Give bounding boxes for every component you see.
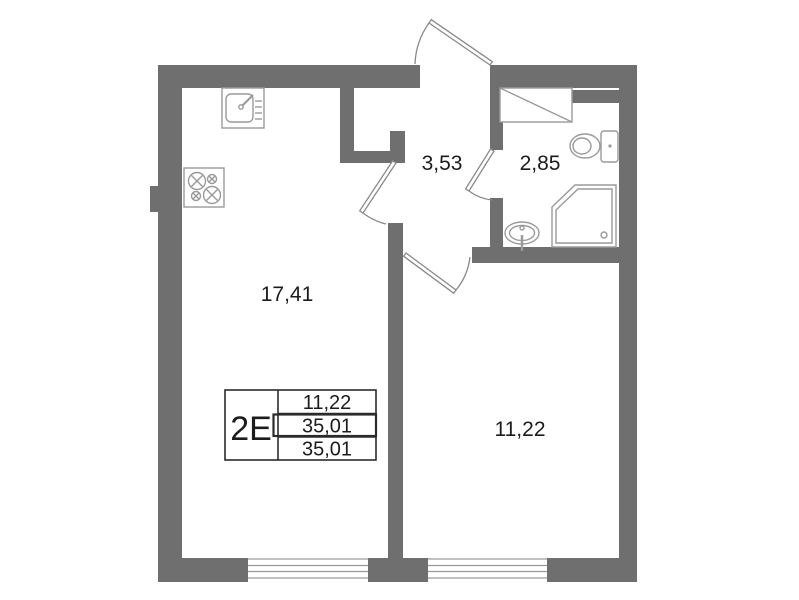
wall-left-nub (150, 186, 158, 212)
entrance-door-swing-arc (415, 23, 429, 64)
room-label-bedroom: 11,22 (495, 418, 546, 441)
wall-top-right (490, 65, 637, 88)
wall-top-left (158, 65, 420, 88)
unit-area-row-1: 11,22 (303, 392, 352, 414)
bedroom-door-swing-arc (456, 257, 470, 290)
living-room-door (360, 161, 396, 224)
wall-left (158, 65, 182, 582)
room-label-bathroom: 2,85 (520, 152, 561, 175)
wall-right (619, 65, 637, 582)
entrance-door (415, 20, 492, 65)
wall-vent-duct (572, 90, 619, 103)
unit-area-row-2: 35,01 (302, 416, 352, 438)
wall-kitchen-niche-stub (390, 131, 405, 163)
wall-bottom-right (547, 558, 637, 582)
shower-icon (552, 185, 616, 247)
stove-icon (184, 168, 224, 207)
window-bedroom (428, 558, 547, 582)
bathroom-door-swing-arc (469, 191, 492, 200)
unit-info-table: 2Е 11,22 35,01 35,01 (225, 390, 376, 461)
bathroom-door (466, 149, 494, 200)
walls (150, 65, 637, 582)
window-living-room (248, 558, 368, 582)
bathroom-door-leaf (466, 149, 494, 191)
unit-area-row-3: 35,01 (302, 439, 352, 461)
wall-bathroom-left-lower (490, 198, 503, 247)
wall-bottom-left (158, 558, 248, 582)
washbasin-icon (505, 222, 539, 251)
wall-bathroom-bottom (472, 247, 619, 263)
floor-plan: 17,41 3,53 2,85 11,22 2Е 11,22 35,01 35,… (0, 0, 799, 600)
washing-machine-icon (500, 88, 572, 122)
wall-bottom-pier (368, 558, 428, 582)
toilet-icon (570, 131, 618, 162)
bedroom-door (404, 253, 470, 293)
entrance-door-leaf (429, 20, 492, 65)
wall-partition-bedroom (388, 223, 403, 558)
room-label-living-kitchen: 17,41 (261, 283, 314, 306)
kitchen-sink-icon (222, 88, 264, 128)
bedroom-door-leaf (404, 253, 456, 293)
room-label-hallway: 3,53 (422, 152, 463, 175)
living-room-door-leaf (360, 161, 396, 213)
floor-plan-canvas: 17,41 3,53 2,85 11,22 2Е 11,22 35,01 35,… (0, 0, 799, 600)
unit-type-label: 2Е (230, 410, 272, 448)
living-room-door-swing-arc (363, 213, 386, 224)
